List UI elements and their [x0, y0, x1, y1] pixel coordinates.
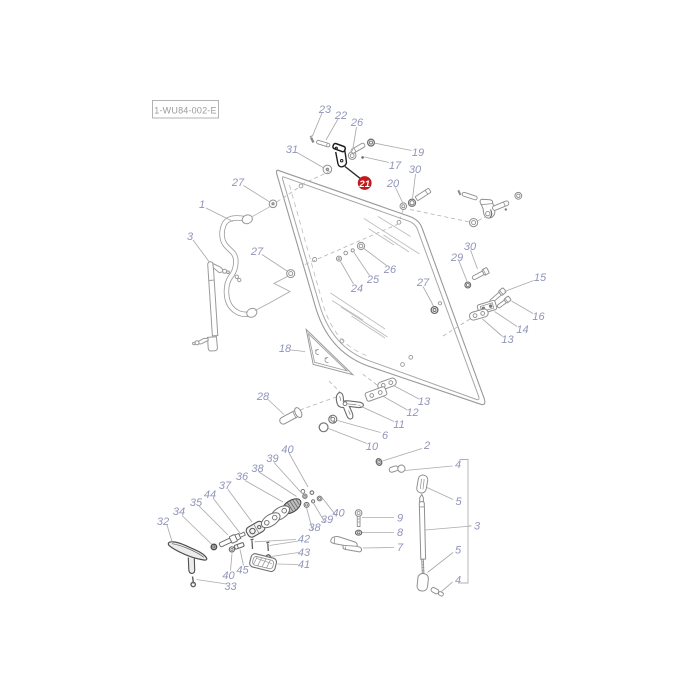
svg-text:28: 28 — [256, 391, 270, 403]
svg-text:22: 22 — [334, 110, 347, 122]
svg-text:44: 44 — [204, 489, 216, 501]
svg-text:32: 32 — [157, 516, 169, 528]
svg-text:33: 33 — [224, 581, 237, 593]
svg-text:3: 3 — [474, 521, 481, 533]
svg-text:1: 1 — [199, 199, 205, 211]
svg-text:2: 2 — [423, 440, 430, 452]
svg-text:13: 13 — [501, 334, 514, 346]
svg-text:27: 27 — [231, 177, 245, 189]
svg-text:3: 3 — [187, 231, 194, 243]
svg-text:43: 43 — [298, 547, 311, 559]
svg-text:20: 20 — [386, 178, 400, 190]
svg-text:34: 34 — [173, 506, 185, 518]
svg-text:23: 23 — [318, 104, 332, 116]
svg-text:27: 27 — [416, 277, 430, 289]
svg-text:37: 37 — [219, 480, 232, 492]
svg-text:31: 31 — [286, 144, 298, 156]
svg-text:26: 26 — [350, 117, 364, 129]
svg-text:6: 6 — [382, 430, 389, 442]
svg-text:1-WU84-002-E: 1-WU84-002-E — [154, 106, 216, 116]
svg-text:29: 29 — [450, 252, 463, 264]
svg-text:39: 39 — [266, 453, 278, 465]
svg-text:38: 38 — [308, 522, 321, 534]
svg-text:41: 41 — [298, 559, 310, 571]
svg-text:42: 42 — [298, 534, 310, 546]
svg-text:15: 15 — [534, 272, 547, 284]
svg-text:17: 17 — [389, 160, 402, 172]
svg-text:30: 30 — [464, 241, 477, 253]
svg-text:18: 18 — [279, 343, 292, 355]
svg-text:21: 21 — [358, 179, 370, 190]
svg-text:4: 4 — [455, 575, 461, 587]
svg-text:40: 40 — [332, 508, 345, 520]
svg-text:11: 11 — [393, 419, 404, 431]
svg-text:4: 4 — [455, 459, 461, 471]
svg-text:26: 26 — [383, 264, 397, 276]
svg-text:27: 27 — [250, 246, 264, 258]
svg-text:40: 40 — [281, 444, 294, 456]
svg-text:5: 5 — [455, 545, 462, 557]
svg-text:16: 16 — [532, 311, 545, 323]
svg-text:19: 19 — [412, 147, 424, 159]
svg-text:10: 10 — [366, 441, 379, 453]
svg-text:35: 35 — [190, 497, 203, 509]
svg-text:24: 24 — [350, 283, 363, 295]
svg-text:38: 38 — [251, 463, 264, 475]
svg-text:45: 45 — [236, 565, 249, 577]
svg-text:12: 12 — [406, 407, 418, 419]
svg-text:36: 36 — [236, 471, 249, 483]
svg-text:30: 30 — [409, 164, 422, 176]
svg-text:5: 5 — [455, 496, 462, 508]
svg-text:13: 13 — [418, 396, 431, 408]
svg-text:39: 39 — [321, 514, 333, 526]
svg-text:7: 7 — [397, 542, 404, 554]
svg-text:9: 9 — [397, 513, 403, 525]
svg-text:25: 25 — [366, 274, 380, 286]
svg-text:8: 8 — [397, 527, 404, 539]
svg-text:14: 14 — [516, 324, 528, 336]
